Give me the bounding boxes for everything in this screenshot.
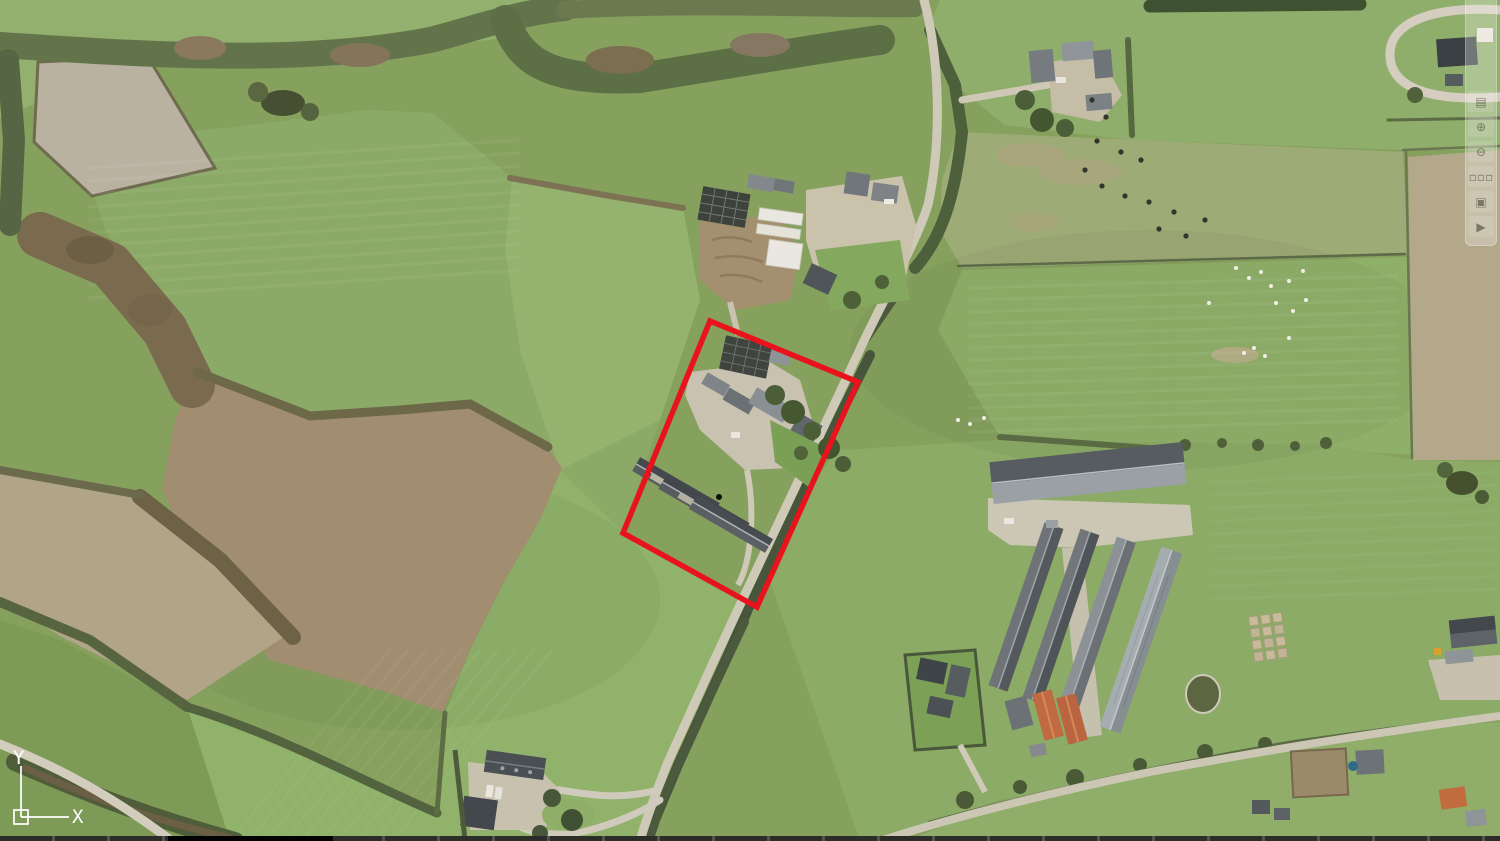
- sheep-dot: [1274, 301, 1278, 305]
- materials-grid-part: [1265, 650, 1275, 660]
- cattle-dot: [1082, 167, 1087, 172]
- white-object: [716, 494, 722, 500]
- barn-roof: [1449, 616, 1498, 649]
- ucs-x-label: X: [72, 806, 84, 828]
- materials-grid-part: [1249, 616, 1259, 626]
- play-icon: ▶: [1476, 221, 1485, 233]
- sheep-dot: [1291, 309, 1295, 313]
- tree: [765, 385, 785, 405]
- sheep-dot: [1247, 276, 1251, 280]
- tree: [843, 291, 861, 309]
- tiles-button[interactable]: ▫▫▫: [1468, 166, 1494, 187]
- cattle-dot: [1122, 193, 1127, 198]
- white-vehicle: [731, 432, 740, 438]
- tree: [1030, 108, 1054, 132]
- map-toolbar: ▤⊕⊖▫▫▫▣▶: [1465, 0, 1497, 246]
- materials-grid-part: [1250, 628, 1260, 638]
- hedge-ne-farm-east: [1128, 40, 1132, 135]
- materials-grid-part: [1272, 612, 1282, 622]
- cattle-dot: [1171, 209, 1176, 214]
- tree: [875, 275, 889, 289]
- play-button[interactable]: ▶: [1468, 216, 1494, 237]
- tree-clump: [128, 294, 172, 326]
- sheep-dot: [1207, 301, 1211, 305]
- shed-roof: [1274, 808, 1290, 820]
- cattle-dot: [1089, 97, 1094, 102]
- cattle-dot: [1183, 233, 1188, 238]
- layers-icon: ▤: [1475, 96, 1486, 108]
- materials-grid-part: [1254, 651, 1264, 661]
- layers-button[interactable]: ▤: [1468, 91, 1494, 112]
- bush: [1320, 437, 1332, 449]
- materials-grid-part: [1274, 624, 1284, 634]
- sheep-dot: [1263, 354, 1267, 358]
- house-roof: [1465, 809, 1487, 828]
- tree: [781, 400, 805, 424]
- orange-house-roof: [1439, 786, 1468, 809]
- digger: [1434, 648, 1441, 655]
- bottom-edge-bar: [0, 836, 1500, 841]
- tree: [794, 446, 808, 460]
- sheep-dot: [1287, 336, 1291, 340]
- trampoline: [1348, 761, 1358, 771]
- sheep-dot: [982, 416, 986, 420]
- barn-roof: [1029, 49, 1056, 83]
- tree: [835, 456, 851, 472]
- garage-roof: [1445, 74, 1463, 86]
- white-vehicle: [884, 199, 894, 204]
- zoom-out-icon: ⊖: [1476, 146, 1486, 158]
- cattle-dot: [1099, 183, 1104, 188]
- cattle-dot: [1202, 217, 1207, 222]
- tree: [1407, 87, 1423, 103]
- worn-patch: [1009, 212, 1061, 232]
- sheep-dot: [968, 422, 972, 426]
- treeline-top-right: [1150, 4, 1360, 6]
- tree-clump: [730, 33, 790, 57]
- white-vehicle: [1004, 518, 1014, 524]
- wood-band-left-edge: [8, 60, 14, 225]
- sheep-dot: [1269, 284, 1273, 288]
- sheep-dot: [956, 418, 960, 422]
- materials-grid-part: [1262, 626, 1272, 636]
- barn-roof: [1085, 93, 1112, 111]
- ucs-y-label: Y: [13, 747, 25, 769]
- select-frame-button[interactable]: ▣: [1468, 191, 1494, 212]
- concrete-foundations-part: [766, 239, 803, 269]
- cattle-dot: [1094, 138, 1099, 143]
- pond-bottom: [1186, 675, 1220, 713]
- tiles-icon: ▫▫▫: [1469, 171, 1493, 183]
- materials-grid-part: [1264, 638, 1274, 648]
- tree: [1015, 90, 1035, 110]
- cattle-dot: [1138, 157, 1143, 162]
- cattle-dot: [1156, 226, 1161, 231]
- tree: [1475, 490, 1489, 504]
- tree: [543, 789, 561, 807]
- house-roof: [844, 171, 871, 196]
- bush: [1252, 439, 1264, 451]
- barn-roof: [1061, 41, 1094, 62]
- materials-grid-part: [1260, 614, 1270, 624]
- sheep-dot: [1242, 351, 1246, 355]
- sheep-dot: [1252, 346, 1256, 350]
- white-vehicle: [1046, 520, 1058, 528]
- tree: [248, 82, 268, 102]
- tree: [956, 791, 974, 809]
- sheep-dot: [1259, 270, 1263, 274]
- zoom-in-button[interactable]: ⊕: [1468, 116, 1494, 137]
- select-frame-icon: ▣: [1475, 196, 1486, 208]
- cattle-dot: [1118, 149, 1123, 154]
- shed-roof: [1252, 800, 1270, 814]
- tree-clump: [586, 46, 654, 74]
- aerial-photo: X Y: [0, 0, 1500, 841]
- barn-roof: [1093, 49, 1113, 78]
- tree-clump: [66, 236, 114, 264]
- materials-grid-part: [1276, 636, 1286, 646]
- tree: [1437, 462, 1453, 478]
- tree: [561, 809, 583, 831]
- materials-grid-part: [1252, 640, 1262, 650]
- bush: [1290, 441, 1300, 451]
- house-roof: [1355, 749, 1384, 774]
- sheep-dot: [1304, 298, 1308, 302]
- sheep-dot: [1234, 266, 1238, 270]
- tree: [301, 103, 319, 121]
- sheep-dot: [1301, 269, 1305, 273]
- tree: [1056, 119, 1074, 137]
- tree: [803, 422, 821, 440]
- bush: [1217, 438, 1227, 448]
- feed-patch: [1211, 347, 1259, 363]
- worn-patch: [1038, 159, 1122, 185]
- tree-clump: [174, 36, 226, 60]
- aerial-map-view: X Y ▤⊕⊖▫▫▫▣▶: [0, 0, 1500, 841]
- sheep-dot: [1287, 279, 1291, 283]
- bottom-edge-black-segment: [168, 836, 333, 841]
- zoom-in-icon: ⊕: [1476, 121, 1486, 133]
- tree: [1013, 780, 1027, 794]
- cattle-dot: [1146, 199, 1151, 204]
- cattle-dot: [1103, 114, 1108, 119]
- materials-grid-part: [1277, 648, 1287, 658]
- garden-plot: [1291, 749, 1348, 798]
- wood-band-top-right: [565, 6, 915, 10]
- zoom-out-button[interactable]: ⊖: [1468, 141, 1494, 162]
- tree-clump: [330, 43, 390, 67]
- white-vehicle: [1056, 77, 1066, 83]
